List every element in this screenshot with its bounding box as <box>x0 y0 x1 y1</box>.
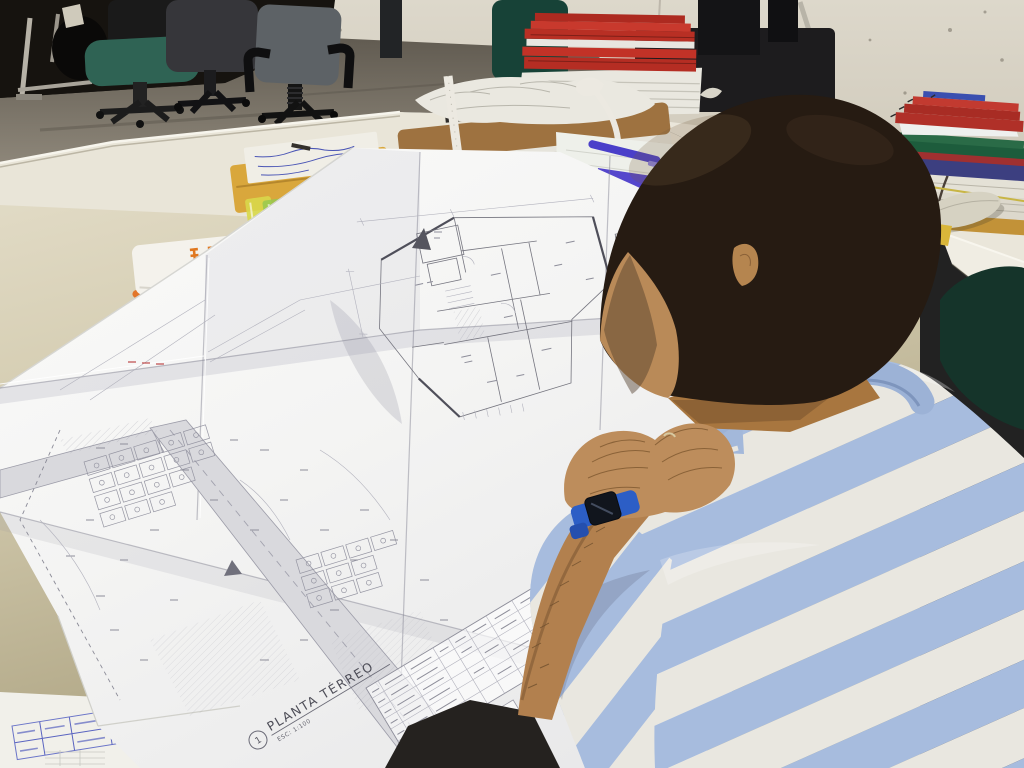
photo-scene: 1 PLANTA TÉRREO ESC: 1:100 <box>0 0 1024 768</box>
head <box>600 95 941 405</box>
monitor <box>698 0 760 55</box>
scene-canvas: 1 PLANTA TÉRREO ESC: 1:100 <box>0 0 1024 768</box>
